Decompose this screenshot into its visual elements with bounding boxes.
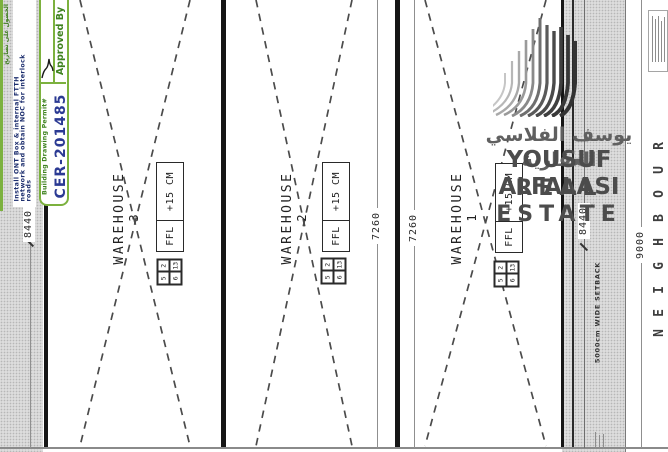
grid-ref-cell: 13 xyxy=(507,262,519,275)
ffl-value: +15 CM xyxy=(323,163,349,220)
grid-ref-cell: 5 xyxy=(495,274,507,287)
neighbour-letter: H xyxy=(650,232,668,252)
band-small-note-marks xyxy=(595,432,605,450)
dimension-label-9000: 9000 xyxy=(635,227,647,263)
warehouse-2-ffl-tag: FFL +15 CM xyxy=(322,162,350,252)
dimension-label-7260-b: 7260 xyxy=(408,210,420,246)
warehouse-3-grid-tag: 5 2 6 13 xyxy=(157,259,183,286)
logo-tower-icon xyxy=(493,13,589,117)
arabic-note-text: الحصول على تصاريح xyxy=(3,4,13,68)
ffl-label: FFL xyxy=(323,220,349,251)
grid-ref-cell: 6 xyxy=(170,272,182,285)
dimension-label-7260-a: 7260 xyxy=(371,208,383,244)
logo-arabic-name: يوسف الفلاسي العقارية xyxy=(452,123,666,148)
neighbour-letter: I xyxy=(650,280,668,300)
warehouse-2-grid-tag: 5 2 6 13 xyxy=(321,258,347,285)
warehouse-3-number: 3 xyxy=(127,158,141,278)
grid-ref-cell: 13 xyxy=(334,259,346,272)
grid-ref-cell: 6 xyxy=(334,271,346,284)
neighbour-letter: G xyxy=(650,256,668,276)
neighbour-letter: N xyxy=(650,323,668,343)
logo-name-en: YOUSUF ALFALASI xyxy=(450,147,668,174)
warehouse-3-label: WAREHOUSE 3 xyxy=(113,158,143,278)
warehouse-2-label: WAREHOUSE 2 xyxy=(281,158,311,278)
approved-by-label: Approved By xyxy=(55,5,67,77)
neighbour-letter: B xyxy=(650,208,668,228)
logo-tagline-en: REAL ESTATE xyxy=(450,176,668,202)
floor-plan-canvas: 8440 7260 7260 8440 9000 WAREHOUSE 3 FFL… xyxy=(0,0,668,452)
permit-number: CER-201485 xyxy=(53,90,69,202)
grid-ref-cell: 2 xyxy=(158,260,170,273)
setback-width-label: 5000cm WIDE SETBACK xyxy=(594,248,603,378)
warehouse-2-name: WAREHOUSE xyxy=(281,158,295,278)
warehouse-3-name: WAREHOUSE xyxy=(113,158,127,278)
grid-ref-cell: 2 xyxy=(495,262,507,275)
corner-note-box xyxy=(648,10,668,72)
grid-ref-cell: 2 xyxy=(322,259,334,272)
permit-label: Building Drawing Permit# xyxy=(42,91,51,203)
grid-ref-cell: 5 xyxy=(322,271,334,284)
grid-ref-cell: 13 xyxy=(170,260,182,273)
dimension-label-8440-left: 8440 xyxy=(23,206,35,242)
signature-mark xyxy=(41,56,54,80)
neighbour-letter: E xyxy=(650,303,668,323)
grid-ref-cell: 5 xyxy=(158,272,170,285)
warehouse-3-ffl-tag: FFL +15 CM xyxy=(156,162,184,252)
warehouse-1-grid-tag: 5 2 6 13 xyxy=(494,261,520,288)
ftth-note-line-3: roads xyxy=(26,7,34,202)
ffl-value: +15 CM xyxy=(157,163,183,220)
grid-ref-cell: 6 xyxy=(507,274,519,287)
approval-box-hdivider xyxy=(41,82,66,84)
ffl-label: FFL xyxy=(157,220,183,251)
warehouse-2-number: 2 xyxy=(295,158,309,278)
